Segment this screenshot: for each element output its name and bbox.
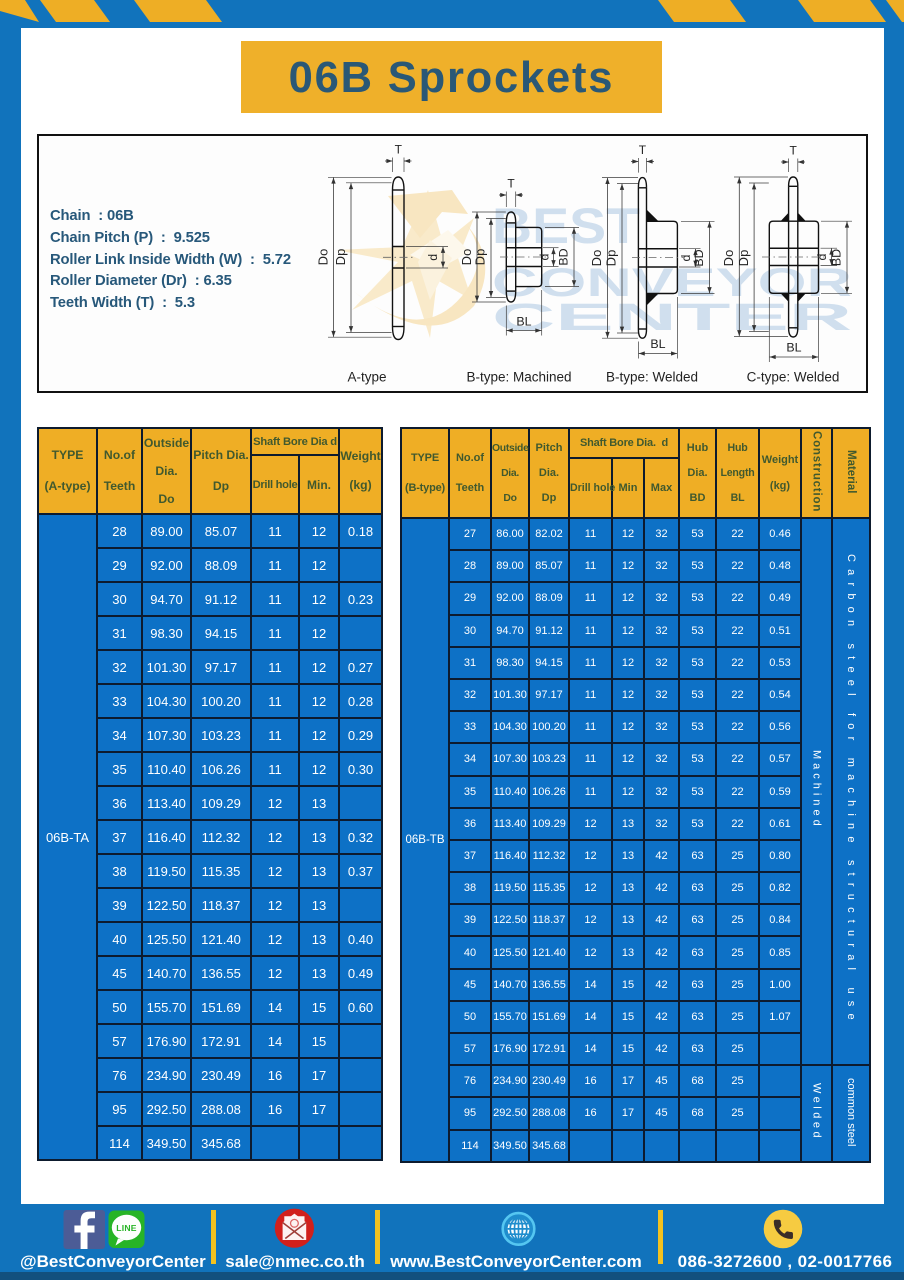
svg-text:Do: Do <box>589 250 604 267</box>
svg-text:Do: Do <box>316 249 331 266</box>
svg-text:BD: BD <box>830 249 844 266</box>
svg-text:BL: BL <box>786 341 801 355</box>
svg-text:B-type: Welded: B-type: Welded <box>606 370 698 385</box>
svg-text:d: d <box>426 254 440 261</box>
svg-text:T: T <box>395 143 403 157</box>
svg-text:Dp: Dp <box>736 250 751 267</box>
svg-text:Do: Do <box>721 250 736 267</box>
svg-text:A-type: A-type <box>347 370 386 385</box>
svg-text:T: T <box>639 143 647 157</box>
svg-text:T: T <box>507 177 515 191</box>
svg-text:BL: BL <box>516 315 531 329</box>
svg-text:BD: BD <box>692 249 706 266</box>
svg-text:Dp: Dp <box>604 250 619 267</box>
svg-text:BD: BD <box>557 248 571 265</box>
svg-text:Dp: Dp <box>473 249 488 266</box>
svg-text:Dp: Dp <box>333 249 348 266</box>
svg-text:C-type: Welded: C-type: Welded <box>747 370 840 385</box>
svg-text:BEST: BEST <box>492 198 640 254</box>
svg-text:d: d <box>815 253 829 260</box>
svg-text:d: d <box>537 253 551 260</box>
svg-text:LINE: LINE <box>116 1223 136 1233</box>
svg-text:d: d <box>679 254 693 261</box>
svg-text:B-type: Machined: B-type: Machined <box>466 370 571 385</box>
svg-text:BL: BL <box>650 337 665 351</box>
svg-text:T: T <box>790 144 798 158</box>
